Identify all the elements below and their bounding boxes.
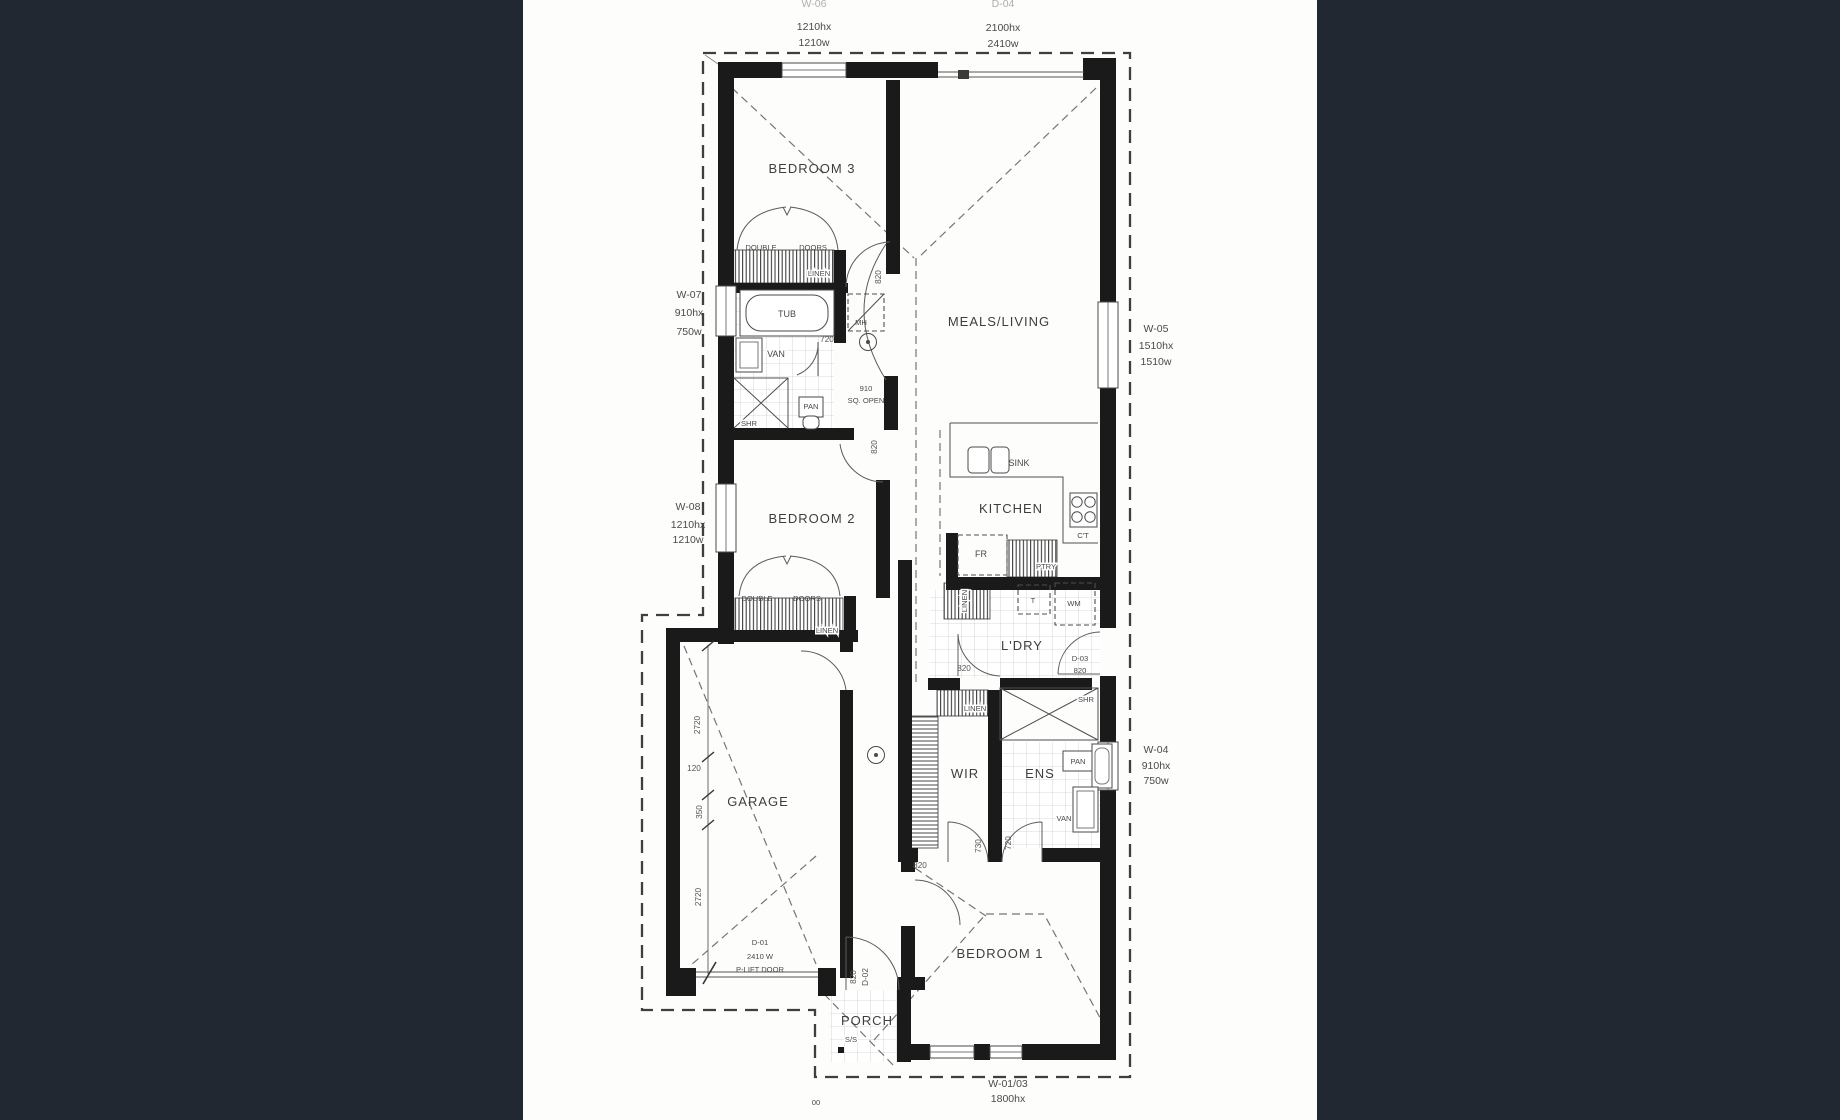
ens-pan-label: PAN [1070,757,1085,766]
windows [716,63,1118,1058]
tiled-floors [734,290,1100,1062]
w07-height: 910hx [675,307,704,319]
w06-width: 1210w [799,37,830,49]
d01-width: 2410 W [747,952,774,961]
trough-label: T [1031,596,1036,605]
wm-label: WM [1067,599,1081,608]
window-w01 [930,1046,974,1058]
sheet-mark: 00 [812,1098,820,1107]
kitchen-sink [968,447,1009,473]
porch-ss-label: S/S [845,1035,857,1044]
pantry-label: PTRY [1036,562,1056,571]
w06-height: 1210hx [797,21,832,33]
schedule-labels: W-06 1210hx 1210w D-04 2100hx 2410w W-07… [671,0,1174,1105]
window-w03 [990,1046,1022,1058]
cooktop-label: C'T [1077,531,1089,540]
left-letterbox-band [0,0,523,1120]
dim-wir-door-730: 730 [974,839,983,853]
w0103-height: 1800hx [991,1093,1026,1105]
dim-garage-2720-lower: 2720 [694,887,703,906]
w07-id: W-07 [677,289,702,301]
sq-open-label: SQ. OPEN [848,396,885,405]
bed3-robe-double-label: DOUBLE [745,243,776,252]
bath-shr-label: SHR [741,419,758,428]
d01-id: D-01 [752,938,768,947]
w04-height: 910hx [1142,760,1171,772]
bath-pan-label: PAN [803,402,818,411]
w08-id: W-08 [676,501,701,513]
w05-id: W-05 [1144,323,1169,335]
dim-garage-120: 120 [687,764,701,773]
w04-id: W-04 [1144,744,1169,756]
d04-height: 2100hx [986,22,1021,34]
room-label-laundry: L'DRY [1001,638,1043,653]
door-d04-slider [938,70,1084,79]
ceiling-fitting-2 [868,747,885,764]
floor-plan-drawing: BEDROOM 3 MEALS/LIVING KITCHEN BEDROOM 2… [523,0,1317,1120]
room-label-porch: PORCH [841,1013,893,1028]
right-letterbox-band [1317,0,1840,1120]
ceiling-fitting-1 [860,334,877,351]
dim-garage-350: 350 [695,805,704,819]
ens-basin [1092,744,1112,788]
bed2-linen-label: LINEN [816,626,838,635]
room-label-garage: GARAGE [727,794,789,809]
d02-id: D-02 [861,968,870,986]
bed3-linen-label: LINEN [808,269,830,278]
w05-width: 1510w [1141,356,1172,368]
floor-plan-screenshot: BEDROOM 3 MEALS/LIVING KITCHEN BEDROOM 2… [0,0,1840,1120]
window-w07 [716,286,736,336]
room-label-meals-living: MEALS/LIVING [948,314,1050,329]
ens-van-label: VAN [1056,814,1071,823]
dim-bath-door-720: 720 [820,335,834,344]
bath-van-label: VAN [767,349,785,359]
laundry-linen-label: LINEN [960,590,969,612]
d02-dim: 820 [849,970,858,984]
bed2-robe-doors-label: DOORS [793,594,821,603]
d04-width: 2410w [988,38,1019,50]
dim-laundry-door-820: 820 [957,664,971,673]
room-label-bedroom3: BEDROOM 3 [768,161,855,176]
ens-vanity [1073,787,1098,832]
ens-shr-label: SHR [1078,695,1095,704]
bed2-robe-double-label: DOUBLE [741,594,772,603]
room-label-bedroom1: BEDROOM 1 [956,946,1043,961]
w08-height: 1210hx [671,519,706,531]
sink-label: SINK [1008,458,1029,468]
sq-open-num-label: 910 [860,384,873,393]
porch-downpipe [838,1047,844,1053]
mh-label: MH [855,318,867,327]
dim-hall-mid-820: 820 [870,440,879,454]
d01-type: P-LIFT DOOR [736,965,784,974]
w06-id: W-06 [802,0,827,10]
bath-vanity [736,338,762,372]
d03-dim: 820 [1074,666,1087,675]
w04-width: 750w [1143,775,1169,787]
dim-garage-2720-upper: 2720 [693,715,702,734]
room-label-wir: WIR [951,766,979,781]
w08-width: 1210w [673,534,704,546]
window-w06 [782,63,846,77]
w05-height: 1510hx [1139,340,1174,352]
wir-linen-label: LINEN [964,704,986,713]
tub-label: TUB [778,309,796,319]
dim-hall-top-820: 820 [874,270,883,284]
d03-id: D-03 [1072,654,1088,663]
cooktop [1070,493,1097,527]
window-w08 [716,484,736,552]
room-label-bedroom2: BEDROOM 2 [768,511,855,526]
room-label-ens: ENS [1025,766,1055,781]
room-label-kitchen: KITCHEN [979,501,1043,516]
d04-id: D-04 [992,0,1015,10]
dim-ens-door-720: 720 [1004,836,1013,850]
w0103-id: W-01/03 [988,1078,1028,1090]
dim-bed1-entry-820: 820 [913,861,927,870]
window-w05 [1098,302,1118,388]
fridge-label: FR [975,549,987,559]
scanned-plan-sheet: BEDROOM 3 MEALS/LIVING KITCHEN BEDROOM 2… [523,0,1317,1120]
w07-width: 750w [676,326,702,338]
bed3-robe-doors-label: DOORS [799,243,827,252]
